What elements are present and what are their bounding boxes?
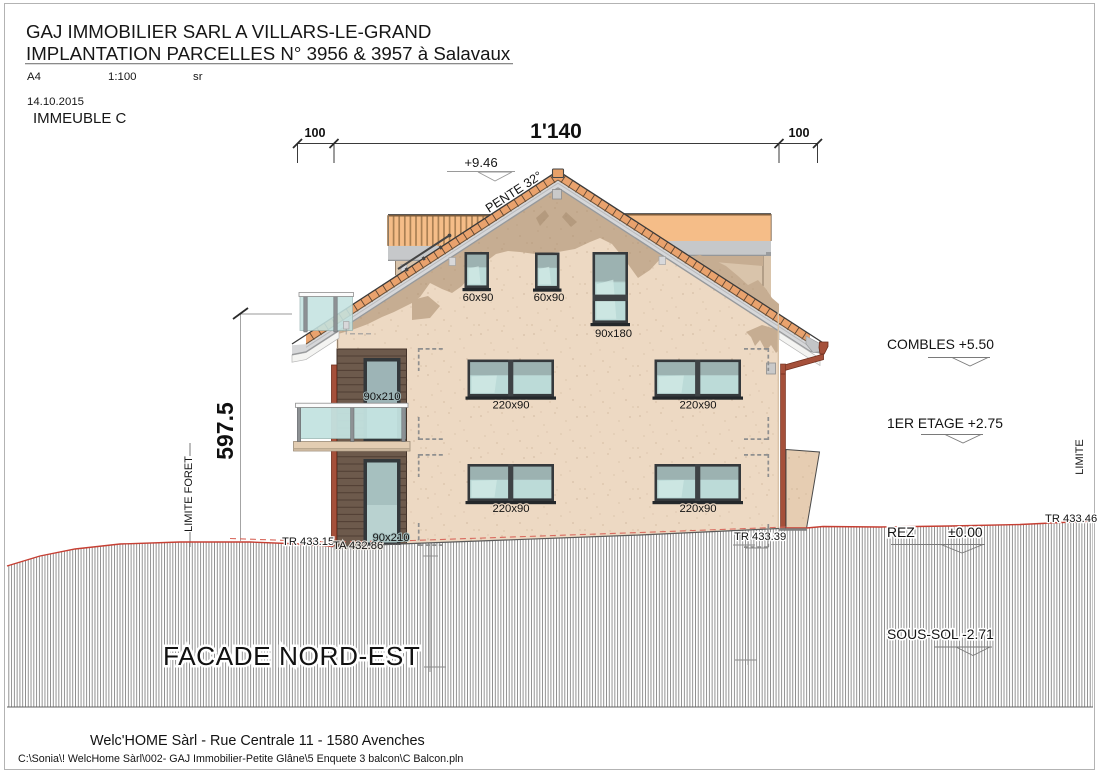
svg-text:90x180: 90x180 xyxy=(595,328,632,340)
svg-text:IMMEUBLE C: IMMEUBLE C xyxy=(33,110,127,127)
svg-text:90x210: 90x210 xyxy=(363,391,400,403)
svg-text:60x90: 60x90 xyxy=(534,292,565,304)
svg-text:597.5: 597.5 xyxy=(212,402,238,460)
svg-text:220x90: 220x90 xyxy=(492,503,529,515)
svg-text:100: 100 xyxy=(304,126,325,140)
svg-text:1ER ETAGE +2.75: 1ER ETAGE +2.75 xyxy=(887,415,1003,431)
svg-text:IMPLANTATION PARCELLES N° 3956: IMPLANTATION PARCELLES N° 3956 & 3957 à … xyxy=(26,43,511,64)
svg-text:220x90: 220x90 xyxy=(492,400,529,412)
svg-text:100: 100 xyxy=(788,126,809,140)
svg-text:TR 433.39: TR 433.39 xyxy=(734,531,786,543)
svg-text:sr: sr xyxy=(193,71,203,83)
svg-text:A4: A4 xyxy=(27,71,41,83)
svg-text:GAJ IMMOBILIER SARL A VILLARS-: GAJ IMMOBILIER SARL A VILLARS-LE-GRAND xyxy=(26,21,431,42)
svg-text:Welc'HOME Sàrl - Rue Centrale: Welc'HOME Sàrl - Rue Centrale 11 - 1580 … xyxy=(90,733,425,749)
svg-text:C:\Sonia\! WelcHome Sàrl\002-: C:\Sonia\! WelcHome Sàrl\002- GAJ Immobi… xyxy=(18,753,463,765)
svg-text:14.10.2015: 14.10.2015 xyxy=(27,96,84,108)
svg-text:1:100: 1:100 xyxy=(108,71,137,83)
svg-text:1'140: 1'140 xyxy=(530,120,582,143)
svg-text:±0.00: ±0.00 xyxy=(948,524,983,540)
svg-text:REZ: REZ xyxy=(887,524,915,540)
svg-text:220x90: 220x90 xyxy=(679,503,716,515)
svg-text:220x90: 220x90 xyxy=(679,400,716,412)
svg-text:90x210: 90x210 xyxy=(372,532,409,544)
svg-text:TR 433.15: TR 433.15 xyxy=(282,536,334,548)
svg-text:TR 433.46: TR 433.46 xyxy=(1045,513,1097,525)
svg-text:SOUS-SOL -2.71: SOUS-SOL -2.71 xyxy=(887,626,994,642)
svg-text:+9.46: +9.46 xyxy=(464,155,497,170)
svg-text:FACADE NORD-EST: FACADE NORD-EST xyxy=(163,641,420,671)
svg-text:LIMITE: LIMITE xyxy=(1074,439,1086,474)
svg-text:60x90: 60x90 xyxy=(463,292,494,304)
svg-text:COMBLES +5.50: COMBLES +5.50 xyxy=(887,336,994,352)
svg-text:LIMITE FORET: LIMITE FORET xyxy=(183,456,195,532)
